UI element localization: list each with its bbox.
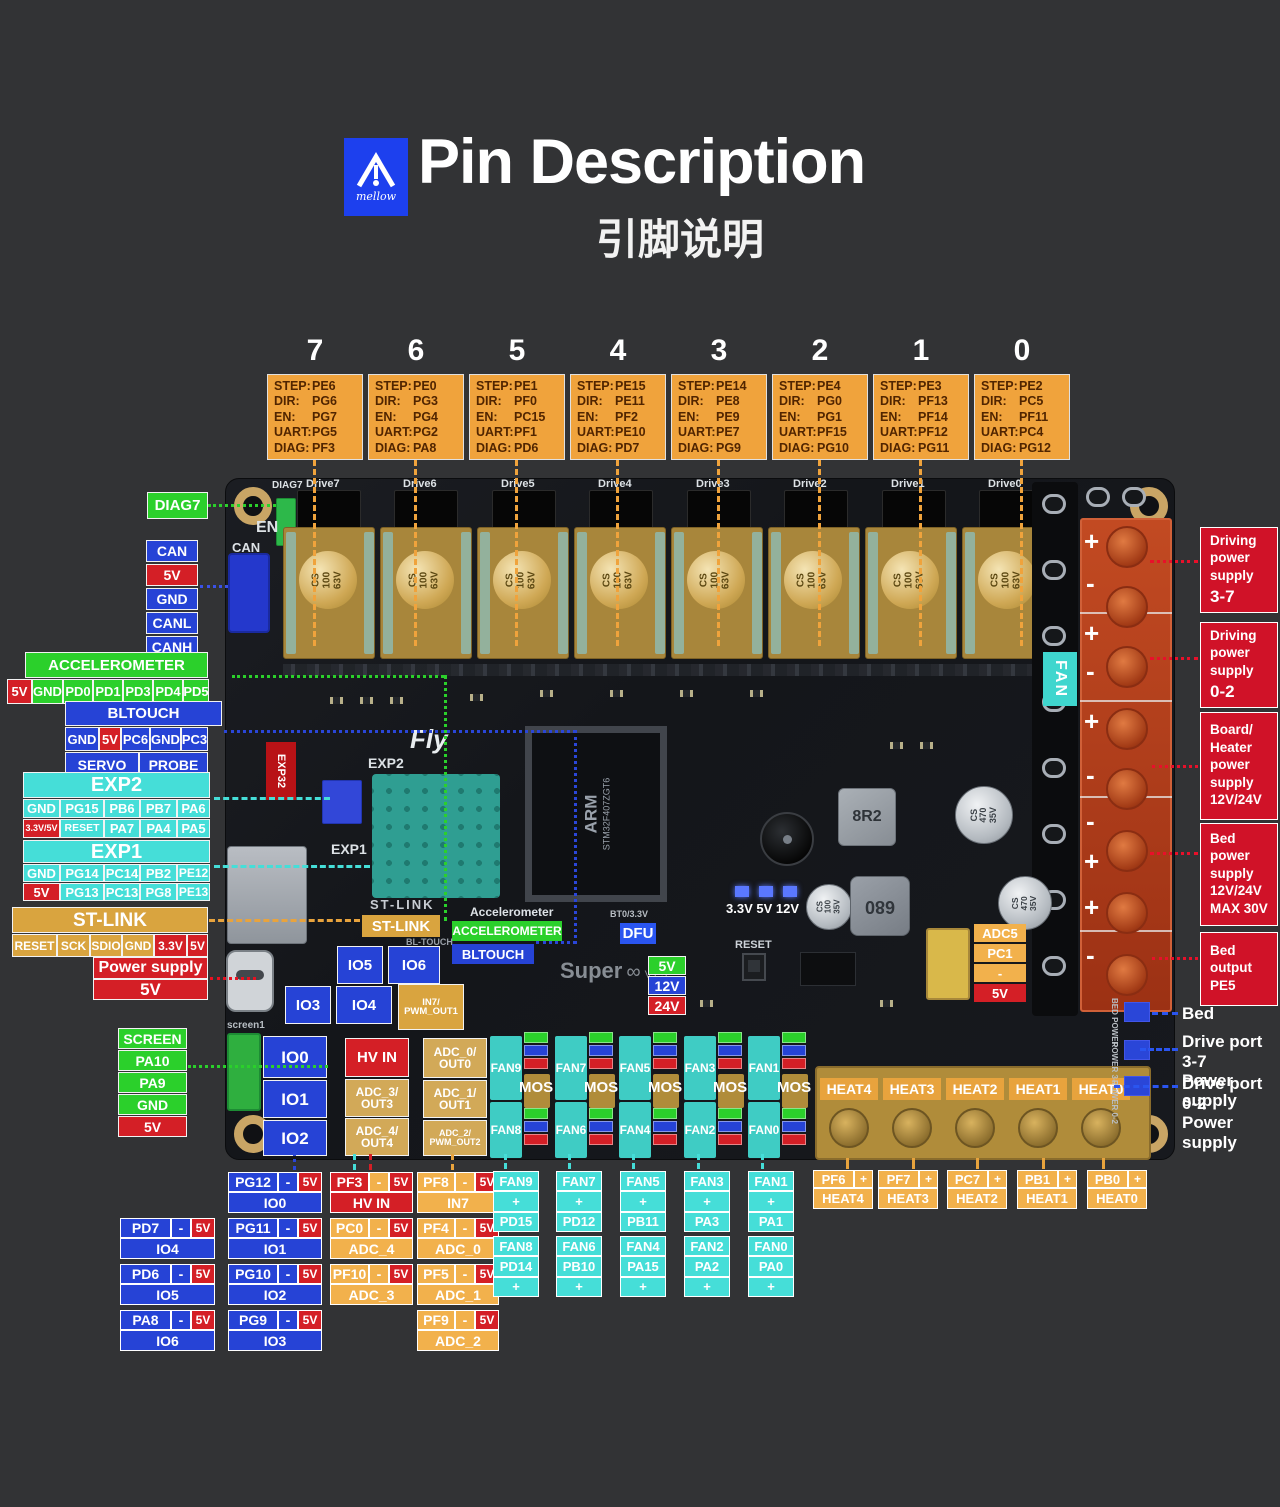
- page-title: Pin Description: [418, 126, 865, 198]
- pin-key: DIR:: [981, 395, 1007, 408]
- accelerometer-silk: Accelerometer: [470, 906, 553, 918]
- terminal-screw: [1106, 954, 1148, 996]
- exp2-leader-line: [214, 797, 330, 800]
- jumper-leds: [718, 1108, 742, 1147]
- hv-in-label-box: PF3-5VHV IN: [330, 1172, 413, 1213]
- driver-leader-line: [818, 460, 821, 646]
- io-leader: [293, 1152, 296, 1170]
- electrolytic-capacitor: CS 100 63V: [978, 551, 1036, 609]
- can-pin: GND: [146, 588, 198, 610]
- adc1-out1-connector: ADC_1/ OUT1: [423, 1080, 487, 1118]
- pin-value: PE10: [615, 426, 659, 439]
- pin-key: EN:: [274, 411, 296, 424]
- pin-key: UART:: [476, 426, 514, 439]
- adc0-out0-connector: ADC_0/ OUT0: [423, 1038, 487, 1078]
- heat-label-box: PB1+HEAT1: [1017, 1170, 1077, 1211]
- dfu-label: DFU: [620, 923, 656, 944]
- fuse-clip: [1086, 487, 1110, 507]
- pin-key: DIR:: [375, 395, 401, 408]
- exp1-pin: PG13: [60, 883, 104, 901]
- driver-leader-line: [414, 460, 417, 646]
- fan-leader: [697, 1154, 700, 1169]
- heat-label-box: PF7+HEAT3: [878, 1170, 938, 1211]
- driver-pinout-box-1: STEP:PE3 DIR:PF13 EN:PF14 UART:PF12 DIAG…: [873, 374, 969, 460]
- exp1-pin: PG8: [140, 883, 177, 901]
- pin-value: PG6: [312, 395, 356, 408]
- exp1-pin: 5V: [23, 883, 60, 901]
- exp1-pin: PB2: [140, 864, 177, 882]
- accelerometer-header: ACCELEROMETER: [25, 652, 208, 678]
- mountain-logo-icon: [354, 152, 398, 190]
- pin-key: EN:: [577, 411, 599, 424]
- bltouch-leader-line: [574, 730, 577, 944]
- driver-number: 1: [873, 334, 969, 368]
- can-connector: [228, 553, 270, 633]
- exp-socket-block: [372, 774, 500, 898]
- heat-label: HEAT0: [1072, 1078, 1130, 1100]
- adc5-pin: PC1: [974, 944, 1026, 962]
- pin-key: DIAG:: [577, 442, 612, 455]
- heater-screw: [1018, 1108, 1058, 1148]
- fan-connector: FAN3: [684, 1036, 716, 1100]
- pin-key: DIR:: [476, 395, 502, 408]
- pin-key: DIAG:: [678, 442, 713, 455]
- pin-key: STEP:: [678, 380, 715, 393]
- adc5-label: ADC5: [974, 924, 1026, 942]
- pin-key: UART:: [577, 426, 615, 439]
- pin-value: PE0: [413, 380, 457, 393]
- driver-leader-line: [717, 460, 720, 646]
- stlink-pin: 3.3V: [154, 934, 187, 957]
- driver-leader-line: [515, 460, 518, 646]
- buzzer: [760, 812, 814, 866]
- power-supply-value: 5V: [93, 979, 208, 1000]
- mos-silk: MOS: [777, 1080, 811, 1095]
- fan-leader: [632, 1154, 635, 1169]
- status-led: [759, 886, 773, 897]
- terminal-screw: [1106, 646, 1148, 688]
- jumper-leds: [782, 1032, 806, 1071]
- pin-key: DIAG:: [880, 442, 915, 455]
- diag7-leader-line: [208, 504, 276, 507]
- drive-silk: Drive7: [306, 479, 340, 490]
- pin-key: DIAG:: [476, 442, 511, 455]
- jumper-leds: [718, 1032, 742, 1071]
- inductor-8r2: 8R2: [838, 788, 896, 846]
- bltouch-header: BLTOUCH: [65, 701, 222, 726]
- jumper-leds: [524, 1108, 548, 1147]
- heat-label: HEAT4: [820, 1078, 878, 1100]
- pin-value: PE1: [514, 380, 558, 393]
- drive37-power-leader: [1150, 560, 1198, 563]
- electrolytic-capacitor: CS 100 63V: [299, 551, 357, 609]
- diag7-annotation: DIAG7: [147, 492, 208, 519]
- adc5-dash: -: [974, 964, 1026, 982]
- adc-label-box: PF5-5VADC_1: [417, 1264, 499, 1305]
- pin-key: DIAG:: [981, 442, 1016, 455]
- pin-value: PE7: [716, 426, 760, 439]
- exp1-pin: PE13: [177, 883, 210, 901]
- fuse-clip: [1042, 956, 1066, 976]
- screen-leader-line: [188, 1065, 328, 1068]
- fan-label-box: FAN4PA15+: [620, 1236, 666, 1297]
- reset-button: [742, 953, 766, 981]
- screen-pin: 5V: [118, 1116, 187, 1137]
- heat-leader: [1102, 1158, 1105, 1169]
- pin-key: DIAG:: [274, 442, 309, 455]
- fan-connector: FAN5: [619, 1036, 651, 1100]
- exp2-pin: RESET: [60, 819, 104, 838]
- mos-silk: MOS: [519, 1080, 553, 1095]
- hv-in-connector: HV IN: [345, 1038, 409, 1077]
- fan-connector: FAN0: [748, 1102, 780, 1158]
- resistor: [390, 697, 403, 704]
- mos-silk: MOS: [584, 1080, 618, 1095]
- voltage-12v-label: 12V: [648, 976, 686, 995]
- mos-silk: MOS: [648, 1080, 682, 1095]
- bltouch-pin: GND: [65, 727, 99, 751]
- driver-pinout-box-7: STEP:PE6 DIR:PG6 EN:PG7 UART:PG5 DIAG:PF…: [267, 374, 363, 460]
- exp32-chip: EXP32: [266, 742, 296, 800]
- heat-leader: [1042, 1158, 1045, 1169]
- pin-value: PF2: [615, 411, 659, 424]
- plus-sign: +: [1084, 620, 1099, 646]
- drive-silk: Drive4: [598, 479, 632, 490]
- heat-label-box: PB0+HEAT0: [1087, 1170, 1147, 1211]
- fan-connector: FAN2: [684, 1102, 716, 1158]
- resistor: [680, 690, 693, 697]
- voltage-5v-label: 5V: [648, 956, 686, 975]
- stlink-pin: SCK: [57, 934, 90, 957]
- resistor: [920, 742, 933, 749]
- fan-label-box: FAN0PA0+: [748, 1236, 794, 1297]
- screen-connector: [227, 1033, 261, 1111]
- terminal-screw: [1106, 892, 1148, 934]
- accel-pin: 5V: [7, 679, 32, 704]
- fuse-clip: [1042, 560, 1066, 580]
- io-label-box: PG12-5VIO0: [228, 1172, 322, 1213]
- resistor: [890, 742, 903, 749]
- power-leader-line: [210, 977, 256, 980]
- heat-leader: [912, 1158, 915, 1169]
- stlink-pin: SDIO: [90, 934, 122, 957]
- pin-value: PD6: [514, 442, 558, 455]
- adc-label-box: PC0-5VADC_4: [330, 1218, 413, 1259]
- drive-silk: Drive3: [696, 479, 730, 490]
- pin-row: DIR:PG6: [274, 395, 356, 408]
- electrolytic-capacitor: CS 100 63V: [590, 551, 648, 609]
- exp1-pin: PC13: [104, 883, 140, 901]
- exp2-pin: 3.3V/5V: [23, 819, 60, 838]
- pin-value: PE14: [716, 380, 760, 393]
- exp2-header: EXP2: [23, 772, 210, 798]
- fan-connector: FAN9: [490, 1036, 522, 1100]
- mellow-logo: mellow: [344, 138, 408, 216]
- screen-pin: PA9: [118, 1072, 187, 1093]
- jumper-leds: [782, 1108, 806, 1147]
- pin-key: DIR:: [678, 395, 704, 408]
- pin-value: PG0: [817, 395, 861, 408]
- exp1-pin: PC14: [104, 864, 140, 882]
- heat-label-box: PF6+HEAT4: [813, 1170, 873, 1211]
- power-supply-header: Power supply: [93, 957, 208, 979]
- drive-silk: Drive2: [793, 479, 827, 490]
- pin-key: DIAG:: [375, 442, 410, 455]
- driver-leader-line: [919, 460, 922, 646]
- pin-value: PC5: [1019, 395, 1063, 408]
- driver-number: 3: [671, 334, 767, 368]
- pin-key: DIAG:: [779, 442, 814, 455]
- electrolytic-capacitor: CS 100 63V: [687, 551, 745, 609]
- exp1-pin: GND: [23, 864, 60, 882]
- driver-pinout-box-5: STEP:PE1 DIR:PF0 EN:PC15 UART:PF1 DIAG:P…: [469, 374, 565, 460]
- fan-label-box: FAN5+PB11: [620, 1171, 666, 1232]
- terminal-screw: [1106, 768, 1148, 810]
- screen1-silk: screen1: [227, 1021, 265, 1031]
- pin-row: UART:PG5: [274, 426, 356, 439]
- pin-value: PA8: [413, 442, 457, 455]
- electrolytic-capacitor: CS 100 63V: [396, 551, 454, 609]
- pin-value: PC4: [1019, 426, 1063, 439]
- board-power-leader: [1152, 765, 1198, 768]
- screen-pin: SCREEN: [118, 1028, 187, 1049]
- bed-power-box: Bed power supply 12V/24V MAX 30V: [1200, 823, 1278, 926]
- pin-value: PE8: [716, 395, 760, 408]
- pin-value: PG4: [413, 411, 457, 424]
- heater-screw: [829, 1108, 869, 1148]
- pin-key: EN:: [880, 411, 902, 424]
- exp1-silk: EXP1: [331, 842, 367, 856]
- exp1-leader-line: [214, 865, 370, 868]
- exp2-pin: PB6: [104, 799, 140, 818]
- stlink-label: ST-LINK: [362, 915, 440, 937]
- pin-row: EN:PG7: [274, 411, 356, 424]
- driver-pinout-box-4: STEP:PE15 DIR:PE11 EN:PF2 UART:PE10 DIAG…: [570, 374, 666, 460]
- drive-silk: Drive0: [988, 479, 1022, 490]
- pin-value: PF11: [1019, 411, 1063, 424]
- resistor: [880, 1000, 893, 1007]
- jumper-leds: [589, 1108, 613, 1147]
- pin-value: PE3: [918, 380, 962, 393]
- driver-leader-line: [1020, 460, 1023, 646]
- adc5-connector: [926, 928, 970, 1000]
- status-led: [783, 886, 797, 897]
- pin-key: UART:: [375, 426, 413, 439]
- reset-silk: RESET: [735, 940, 772, 951]
- sd-card-slot: [227, 846, 307, 944]
- fuse-clip: [1042, 824, 1066, 844]
- stlink-silk: ST-LINK: [370, 898, 435, 911]
- pin-value: PE11: [615, 395, 659, 408]
- pin-value: PF15: [817, 426, 861, 439]
- pin-value: PC15: [514, 411, 558, 424]
- pin-value: PF1: [514, 426, 558, 439]
- bed-output-leader: [1152, 957, 1198, 960]
- stlink-pin: RESET: [12, 934, 57, 957]
- capacitor-470uf: CS 470 35V: [998, 876, 1052, 930]
- pin-value: PF12: [918, 426, 962, 439]
- io-label-box: PD6-5VIO5: [120, 1264, 215, 1305]
- exp2-pin: PA7: [104, 819, 140, 838]
- pin-key: UART:: [981, 426, 1019, 439]
- exp1-pin: PG14: [60, 864, 104, 882]
- driver-pinout-box-0: STEP:PE2 DIR:PC5 EN:PF11 UART:PC4 DIAG:P…: [974, 374, 1070, 460]
- heat-leader: [976, 1158, 979, 1169]
- exp2-silk: EXP2: [368, 756, 404, 770]
- pin-key: EN:: [981, 411, 1003, 424]
- fan-connector: FAN8: [490, 1102, 522, 1158]
- bltouch-pin: GND: [150, 727, 181, 751]
- minus-sign: -: [1086, 762, 1095, 788]
- io5-connector: IO5: [337, 946, 383, 984]
- can-leader-line: [200, 585, 228, 588]
- capacitor-470uf: CS 470 35V: [955, 786, 1013, 844]
- adc4-out4-connector: ADC_4/ OUT4: [345, 1118, 409, 1156]
- pin-value: PG3: [413, 395, 457, 408]
- io1-connector: IO1: [263, 1080, 327, 1118]
- pin-key: UART:: [880, 426, 918, 439]
- can-pin: CANL: [146, 612, 198, 634]
- fuse-clip: [1042, 758, 1066, 778]
- pin-value: PD7: [615, 442, 659, 455]
- adc-label-box: PF9-5VADC_2: [417, 1310, 499, 1351]
- resistor: [360, 697, 373, 704]
- driver-leader-line: [616, 460, 619, 646]
- heater-screw: [955, 1108, 995, 1148]
- capacitor-100uf: CS 100 35V: [806, 884, 852, 930]
- resistor: [540, 690, 553, 697]
- logo-wordmark: mellow: [356, 190, 396, 203]
- bed-power-leader: [1150, 852, 1198, 855]
- heat-leader: [846, 1158, 849, 1169]
- jumper-leds: [589, 1032, 613, 1071]
- pin-key: EN:: [779, 411, 801, 424]
- pin-key: UART:: [274, 426, 312, 439]
- bed-label: Bed: [1182, 1004, 1214, 1024]
- bltouch-leader-line: [224, 730, 576, 733]
- pin-key: STEP:: [880, 380, 917, 393]
- electrolytic-capacitor: CS 100 63V: [784, 551, 842, 609]
- fan-label-box: FAN1+PA1: [748, 1171, 794, 1232]
- drive-silk: Drive6: [403, 479, 437, 490]
- pin-key: DIR:: [779, 395, 805, 408]
- pin-value: PE15: [615, 380, 659, 393]
- driver-pinout-box-6: STEP:PE0 DIR:PG3 EN:PG4 UART:PG2 DIAG:PA…: [368, 374, 464, 460]
- pin-value: PF0: [514, 395, 558, 408]
- pin-value: PG2: [413, 426, 457, 439]
- fan-label-box: FAN3+PA3: [684, 1171, 730, 1232]
- resistor: [330, 697, 343, 704]
- stlink-header: ST-LINK: [12, 907, 208, 933]
- adc-leader: [451, 1154, 454, 1170]
- bed-power-connector: [1124, 1002, 1150, 1022]
- heat-label: HEAT1: [1009, 1078, 1067, 1100]
- mcu-chip: ARMSTM32F407ZGT6: [525, 726, 667, 902]
- driver-pinout-box-3: STEP:PE14 DIR:PE8 EN:PE9 UART:PE7 DIAG:P…: [671, 374, 767, 460]
- pin-value: PG12: [1019, 442, 1063, 455]
- minus-sign: -: [1086, 942, 1095, 968]
- minus-sign: -: [1086, 658, 1095, 684]
- pin-value: PE4: [817, 380, 861, 393]
- board-heater-power-box: Board/ Heater power supply 12V/24V: [1200, 712, 1278, 820]
- pin-key: EN:: [375, 411, 397, 424]
- io-label-box: PG9-5VIO3: [228, 1310, 322, 1351]
- inductor-680: 680: [850, 876, 910, 936]
- pin-key: STEP:: [981, 380, 1018, 393]
- fuse-clip: [1042, 494, 1066, 514]
- pin-value: PG9: [716, 442, 760, 455]
- heater-screw: [892, 1108, 932, 1148]
- driver-number: 5: [469, 334, 565, 368]
- fan-label-box: FAN7+PD12: [556, 1171, 602, 1232]
- ic1-chip: [800, 952, 856, 986]
- exp2-pin: PA6: [177, 799, 210, 818]
- fan-label-box: FAN8PD14+: [493, 1236, 539, 1297]
- fan-label-box: FAN9+PD15: [493, 1171, 539, 1232]
- terminal-screw: [1106, 830, 1148, 872]
- stlink-pin: GND: [122, 934, 154, 957]
- terminal-screw: [1106, 526, 1148, 568]
- minus-sign: -: [1086, 570, 1095, 596]
- mos-silk: MOS: [713, 1080, 747, 1095]
- fan-label-box: FAN2PA2+: [684, 1236, 730, 1297]
- exp2-pin: PA4: [140, 819, 177, 838]
- io4-connector: IO4: [336, 986, 392, 1024]
- accel-leader-line: [444, 675, 447, 921]
- driver-leader-line: [313, 460, 316, 646]
- in7-pwm-out1-connector: IN7/ PWM_OUT1: [398, 984, 464, 1030]
- drive-port-37-leader: [1140, 1048, 1178, 1051]
- pin-value: PG1: [817, 411, 861, 424]
- io-label-box: PG11-5VIO1: [228, 1218, 322, 1259]
- accelerometer-label: ACCELEROMETER: [452, 921, 562, 941]
- led-labels-silk: 3.3V 5V 12V: [726, 902, 799, 915]
- exp2-pin: PB7: [140, 799, 177, 818]
- driver-pinout-box-2: STEP:PE4 DIR:PG0 EN:PG1 UART:PF15 DIAG:P…: [772, 374, 868, 460]
- voltage-24v-label: 24V: [648, 996, 686, 1015]
- adc3-out3-connector: ADC_3/ OUT3: [345, 1079, 409, 1117]
- fly-logo: Fly: [410, 724, 448, 755]
- fan-port-label: FAN: [1043, 652, 1077, 706]
- exp1-pin: PE12: [177, 864, 210, 882]
- minus-sign: -: [1086, 808, 1095, 834]
- resistor: [750, 690, 763, 697]
- pin-value: PE2: [1019, 380, 1063, 393]
- plus-sign: +: [1084, 894, 1099, 920]
- hvin-leader: [369, 1154, 372, 1170]
- io-label-box: PA8-5VIO6: [120, 1310, 215, 1351]
- drive-port-02-label: Drive port 0-2 Power supply: [1182, 1074, 1280, 1152]
- drive02-power-leader: [1150, 657, 1198, 660]
- exp-header-connector: [322, 780, 362, 824]
- pin-key: STEP:: [274, 380, 311, 393]
- io3-connector: IO3: [285, 986, 331, 1024]
- driver-number: 6: [368, 334, 464, 368]
- bltouch-pin: PC3: [181, 727, 208, 751]
- accel-leader-line: [232, 675, 444, 678]
- fan-connector: FAN6: [555, 1102, 587, 1158]
- page-subtitle: 引脚说明: [420, 206, 940, 267]
- bltouch-label: BLTOUCH: [452, 944, 534, 964]
- mcu-marking: STM32F407ZGT6: [601, 778, 611, 851]
- infinity-icon: ∞: [626, 961, 640, 984]
- resistor: [700, 1000, 713, 1007]
- adc-label-box: PF4-5VADC_0: [417, 1218, 499, 1259]
- fan-leader: [761, 1154, 764, 1169]
- pin-key: EN:: [476, 411, 498, 424]
- accel-pin: GND: [32, 679, 63, 704]
- pin-value: PG11: [918, 442, 962, 455]
